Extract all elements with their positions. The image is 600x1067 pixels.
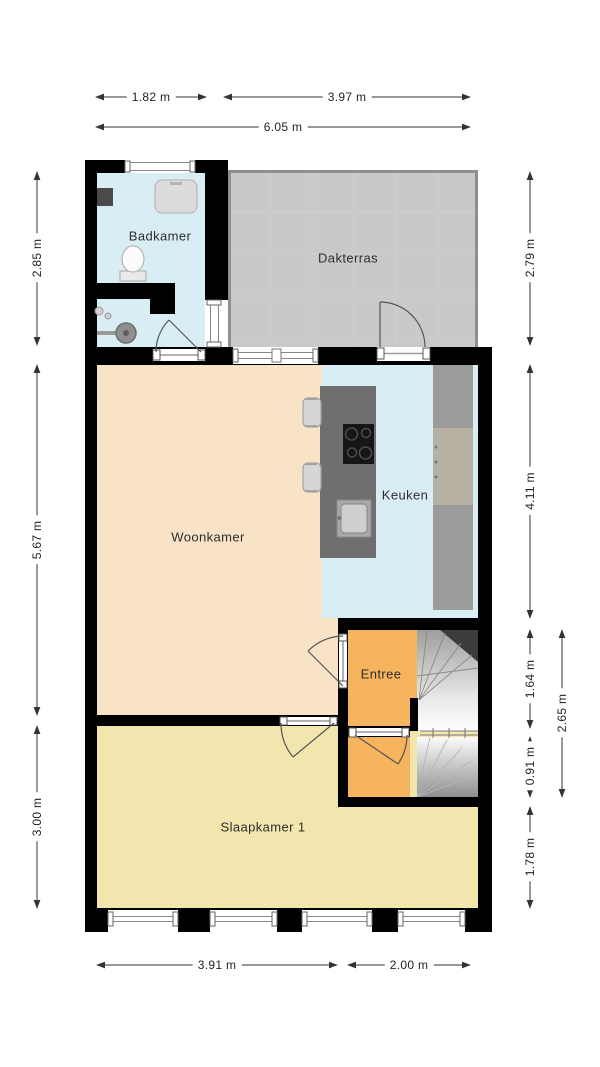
dim-left-woonkamer-height: 5.67 m [30, 516, 44, 565]
room-label-badkamer: Badkamer [129, 229, 191, 244]
washbasin-icon [155, 180, 197, 213]
kitchen-sink-icon [337, 500, 371, 537]
room-label-entree: Entree [361, 667, 402, 682]
cooktop-icon [343, 424, 374, 464]
dim-top-badkamer-width: 1.82 m [127, 90, 176, 104]
dim-right-dakterras-height: 2.79 m [523, 234, 537, 283]
dim-right-hal-height: 0.91 m [523, 742, 537, 791]
room-label-keuken: Keuken [382, 488, 429, 503]
woonkamer-window [233, 347, 318, 364]
kitchen-counter [433, 365, 473, 610]
bar-stool-icon [303, 398, 321, 427]
dim-right-rear-section-height: 1.78 m [523, 833, 537, 882]
room-label-dakterras: Dakterras [318, 251, 378, 266]
dim-right-keuken-height: 4.11 m [523, 467, 537, 515]
toilet-icon [120, 246, 146, 281]
shaft [97, 188, 113, 206]
dim-right-entree-total-height: 2.65 m [555, 689, 569, 738]
dim-bottom-entree-section-width: 2.00 m [385, 958, 434, 972]
floor-plan-drawing [0, 0, 600, 1067]
bar-stool-icon [303, 463, 321, 492]
badkamer-side-window [205, 300, 228, 347]
stairs-down [417, 737, 478, 797]
badkamer-top-window [125, 160, 195, 173]
dim-right-entree-height: 1.64 m [523, 655, 537, 704]
dim-top-dakterras-width: 3.97 m [323, 90, 372, 104]
stairs-up [417, 630, 478, 731]
room-label-slaapkamer1: Slaapkamer 1 [220, 820, 305, 835]
dim-left-slaapkamer-height: 3.00 m [30, 793, 44, 842]
dim-left-badkamer-height: 2.85 m [30, 234, 44, 283]
dim-bottom-slaapkamer-width: 3.91 m [193, 958, 242, 972]
floor-plan-canvas: Badkamer Dakterras Woonkamer Keuken Entr… [0, 0, 600, 1067]
dim-top-total-width: 6.05 m [259, 120, 308, 134]
room-label-woonkamer: Woonkamer [171, 530, 244, 545]
